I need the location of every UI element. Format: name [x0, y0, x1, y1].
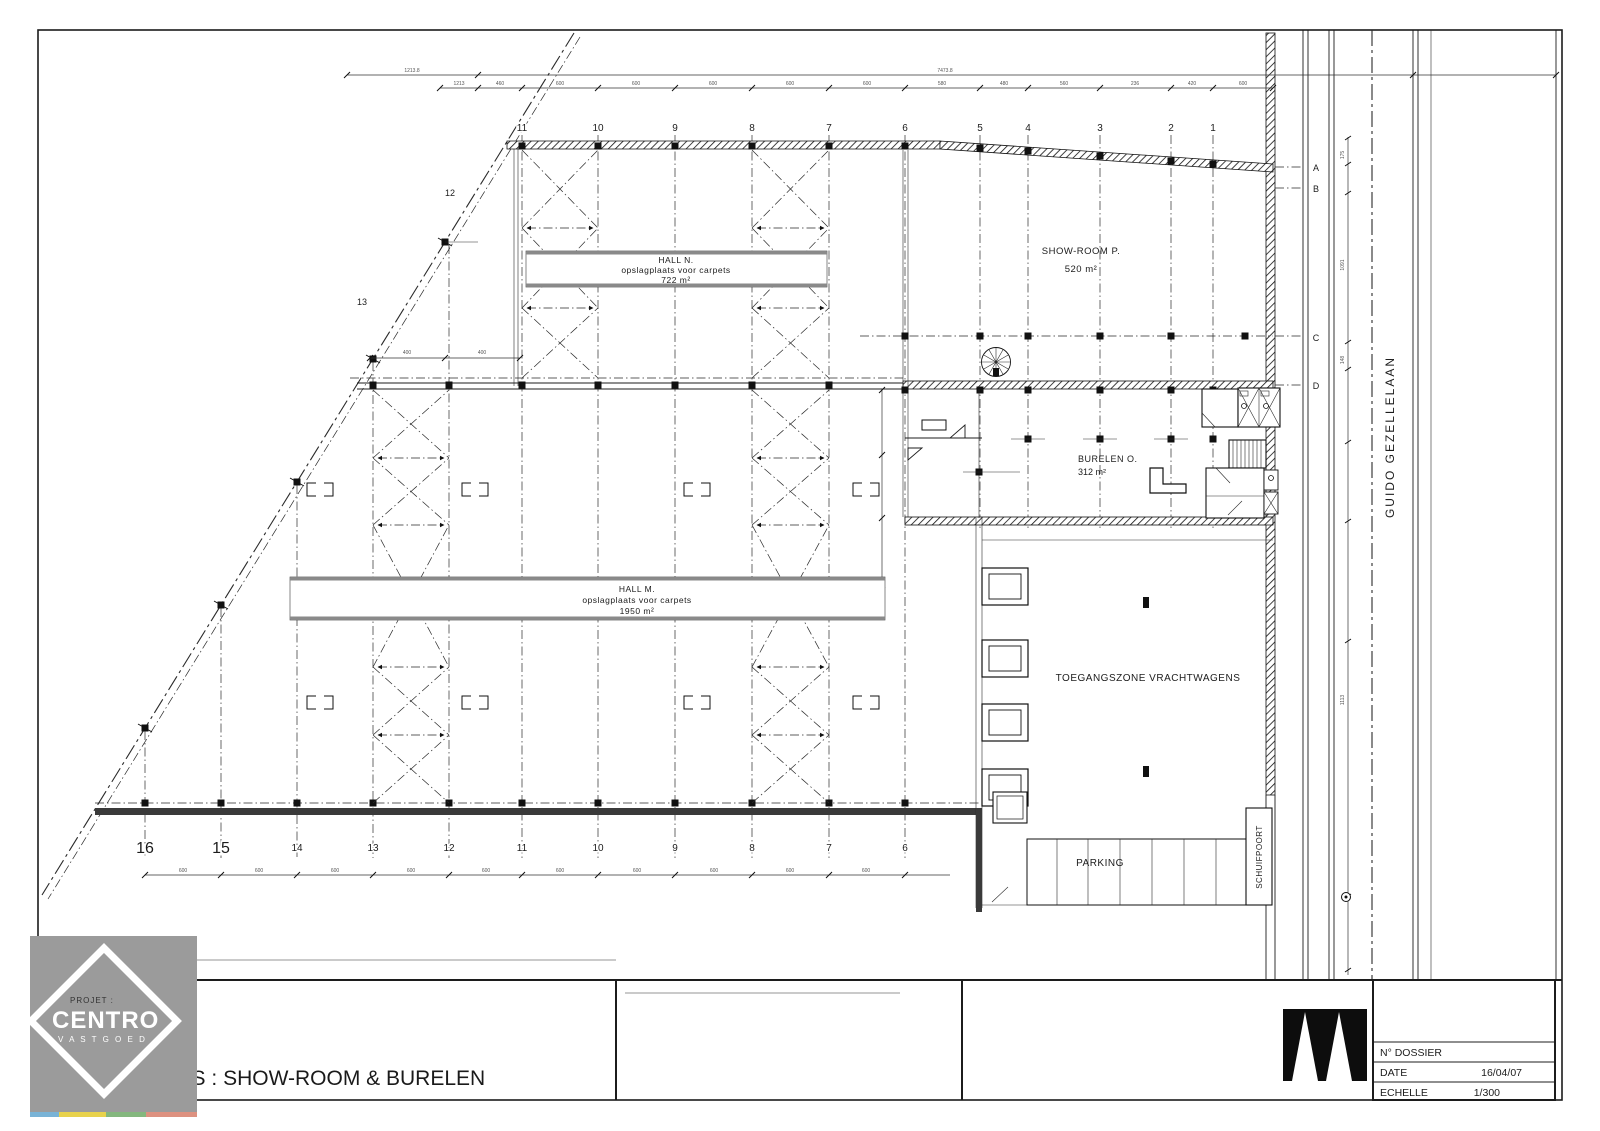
dim-top: 600 [709, 81, 718, 87]
hall-n-area: 722 m² [661, 275, 690, 285]
showroom-area: 520 m² [1065, 264, 1098, 275]
grid-label-bottom: 10 [592, 843, 604, 854]
sliding-gate: SCHUIFPOORT [1246, 808, 1272, 905]
date-label: DATE [1380, 1067, 1407, 1079]
grid-label-bottom: 15 [212, 840, 230, 857]
dim-bottom: 600 [179, 868, 188, 874]
dim-bottom: 600 [407, 868, 416, 874]
parking-label: PARKING [1076, 858, 1124, 869]
dim-bottom: 600 [710, 868, 719, 874]
grid-row-label-c: C [1313, 333, 1320, 343]
dim-bottom: 600 [482, 868, 491, 874]
grid-label-diagonal-13: 13 [357, 297, 367, 307]
showroom-name: SHOW-ROOM P. [1042, 246, 1121, 257]
hall-m-name: HALL M. [619, 584, 655, 594]
dim-top: 236 [1131, 81, 1140, 87]
top-dimension-lines: 1213.8 7473.8 1213 460 600 600 600 600 6… [344, 68, 1559, 91]
truck-zone-label: TOEGANGSZONE VRACHTWAGENS [1056, 673, 1241, 684]
hall-m-label: HALL M. opslagplaats voor carpets 1950 m… [290, 577, 885, 620]
title-strip: N° DOSSIER DATE 16/04/07 ECHELLE 1/300 G… [38, 960, 1562, 1100]
dim-top: 580 [938, 81, 947, 87]
dim-top: 600 [632, 81, 641, 87]
grid-label-top: 1 [1210, 123, 1216, 134]
road-dim-label: 175 [1340, 151, 1346, 160]
brand-name: CENTRO [52, 1007, 159, 1034]
dim-top: 600 [786, 81, 795, 87]
burelen-office: BURELEN O. 312 m² [905, 388, 1280, 518]
staircase [1229, 440, 1266, 468]
road-dim-label: 148 [1340, 356, 1346, 365]
spiral-stair [982, 348, 1011, 377]
accent-color-strip [30, 1112, 197, 1117]
dim-bottom: 600 [786, 868, 795, 874]
hall-n-desc: opslagplaats voor carpets [621, 265, 730, 275]
dim-top: 600 [1239, 81, 1248, 87]
hall-n-label: HALL N. opslagplaats voor carpets 722 m² [526, 251, 827, 287]
grid-label-bottom: 7 [826, 843, 832, 854]
grid-label-bottom: 14 [291, 843, 303, 854]
property-boundary: 12 13 [42, 33, 580, 899]
grid-label-top: 4 [1025, 123, 1031, 134]
grid-label-top: 10 [592, 123, 604, 134]
hall-n-name: HALL N. [658, 255, 693, 265]
grid-label-top: 6 [902, 123, 908, 134]
gate-label: SCHUIFPOORT [1255, 825, 1264, 889]
dim-top: 480 [1000, 81, 1009, 87]
dim-top: 420 [1188, 81, 1197, 87]
burelen-name: BURELEN O. [1078, 454, 1138, 464]
dim-top: 1213 [453, 81, 464, 87]
dim-overall: 7473.8 [937, 68, 953, 74]
hall-m-desc: opslagplaats voor carpets [582, 595, 691, 605]
grid-label-bottom: 16 [136, 840, 154, 857]
parking-area: PARKING SCHUIFPOORT [982, 792, 1272, 905]
grid-label-top: 7 [826, 123, 832, 134]
dim-bottom: 600 [633, 868, 642, 874]
dim-bottom: 600 [331, 868, 340, 874]
showroom: SHOW-ROOM P. 520 m² [982, 246, 1121, 377]
brand-subtitle: V A S T G O E D [58, 1035, 147, 1044]
architect-logo [1283, 1009, 1367, 1081]
grid-row-label-b: B [1313, 184, 1319, 194]
dim-left: 400 [478, 350, 487, 356]
scale-value: 1/300 [1474, 1087, 1500, 1099]
grid-label-bottom: 9 [672, 843, 678, 854]
dim-bottom: 600 [862, 868, 871, 874]
grid-row-label-a: A [1313, 163, 1319, 173]
grid-label-bottom: 13 [367, 843, 379, 854]
grid-label-top: 2 [1168, 123, 1174, 134]
grid-label-top: 11 [517, 123, 528, 134]
grid-columns: 11 10 9 8 7 6 5 4 3 2 1 16 15 14 13 12 1… [136, 123, 1216, 858]
dim-overall: 1213.8 [404, 68, 420, 74]
dim-top: 560 [1060, 81, 1069, 87]
grid-row-label-d: D [1313, 381, 1320, 391]
dim-bottom: 600 [556, 868, 565, 874]
toilets [1238, 388, 1280, 427]
grid-label-bottom: 8 [749, 843, 755, 854]
drawing-sheet: 175 1091 148 1113 GUIDO GEZELLELAAN A B … [0, 0, 1600, 1131]
road-dim-label: 1113 [1340, 695, 1346, 706]
centro-logo: PROJET : CENTRO V A S T G O E D [30, 936, 197, 1117]
grid-label-top: 9 [672, 123, 678, 134]
grid-label-bottom: 6 [902, 843, 908, 854]
dim-left: 400 [403, 350, 412, 356]
dossier-label: N° DOSSIER [1380, 1047, 1442, 1059]
hall-m-area: 1950 m² [620, 606, 655, 616]
bottom-dimension-line: 600 600 600 600 600 600 600 600 600 600 [142, 868, 950, 878]
burelen-area: 312 m² [1078, 467, 1106, 477]
grid-label-top: 8 [749, 123, 755, 134]
project-label: PROJET : [70, 996, 114, 1005]
dim-top: 600 [863, 81, 872, 87]
grid-label-diagonal-12: 12 [445, 188, 455, 198]
date-value: 16/04/07 [1481, 1067, 1522, 1079]
dim-bottom: 600 [255, 868, 264, 874]
truck-zone: TOEGANGSZONE VRACHTWAGENS [982, 568, 1240, 806]
dim-top: 600 [556, 81, 565, 87]
street-name: GUIDO GEZELLELAAN [1383, 356, 1397, 518]
dim-top: 460 [496, 81, 505, 87]
road-dim-label: 1091 [1340, 259, 1346, 270]
street-guido-gezellelaan: 175 1091 148 1113 GUIDO GEZELLELAAN A B … [1266, 30, 1556, 980]
grid-label-bottom: 11 [517, 843, 528, 854]
grid-label-top: 5 [977, 123, 983, 134]
grid-label-top: 3 [1097, 123, 1103, 134]
scale-label: ECHELLE [1380, 1087, 1428, 1099]
grid-label-bottom: 12 [443, 843, 455, 854]
loading-docks [982, 568, 1028, 806]
floor-plan-svg: 175 1091 148 1113 GUIDO GEZELLELAAN A B … [0, 0, 1600, 1131]
sheet-border [38, 30, 1562, 1100]
